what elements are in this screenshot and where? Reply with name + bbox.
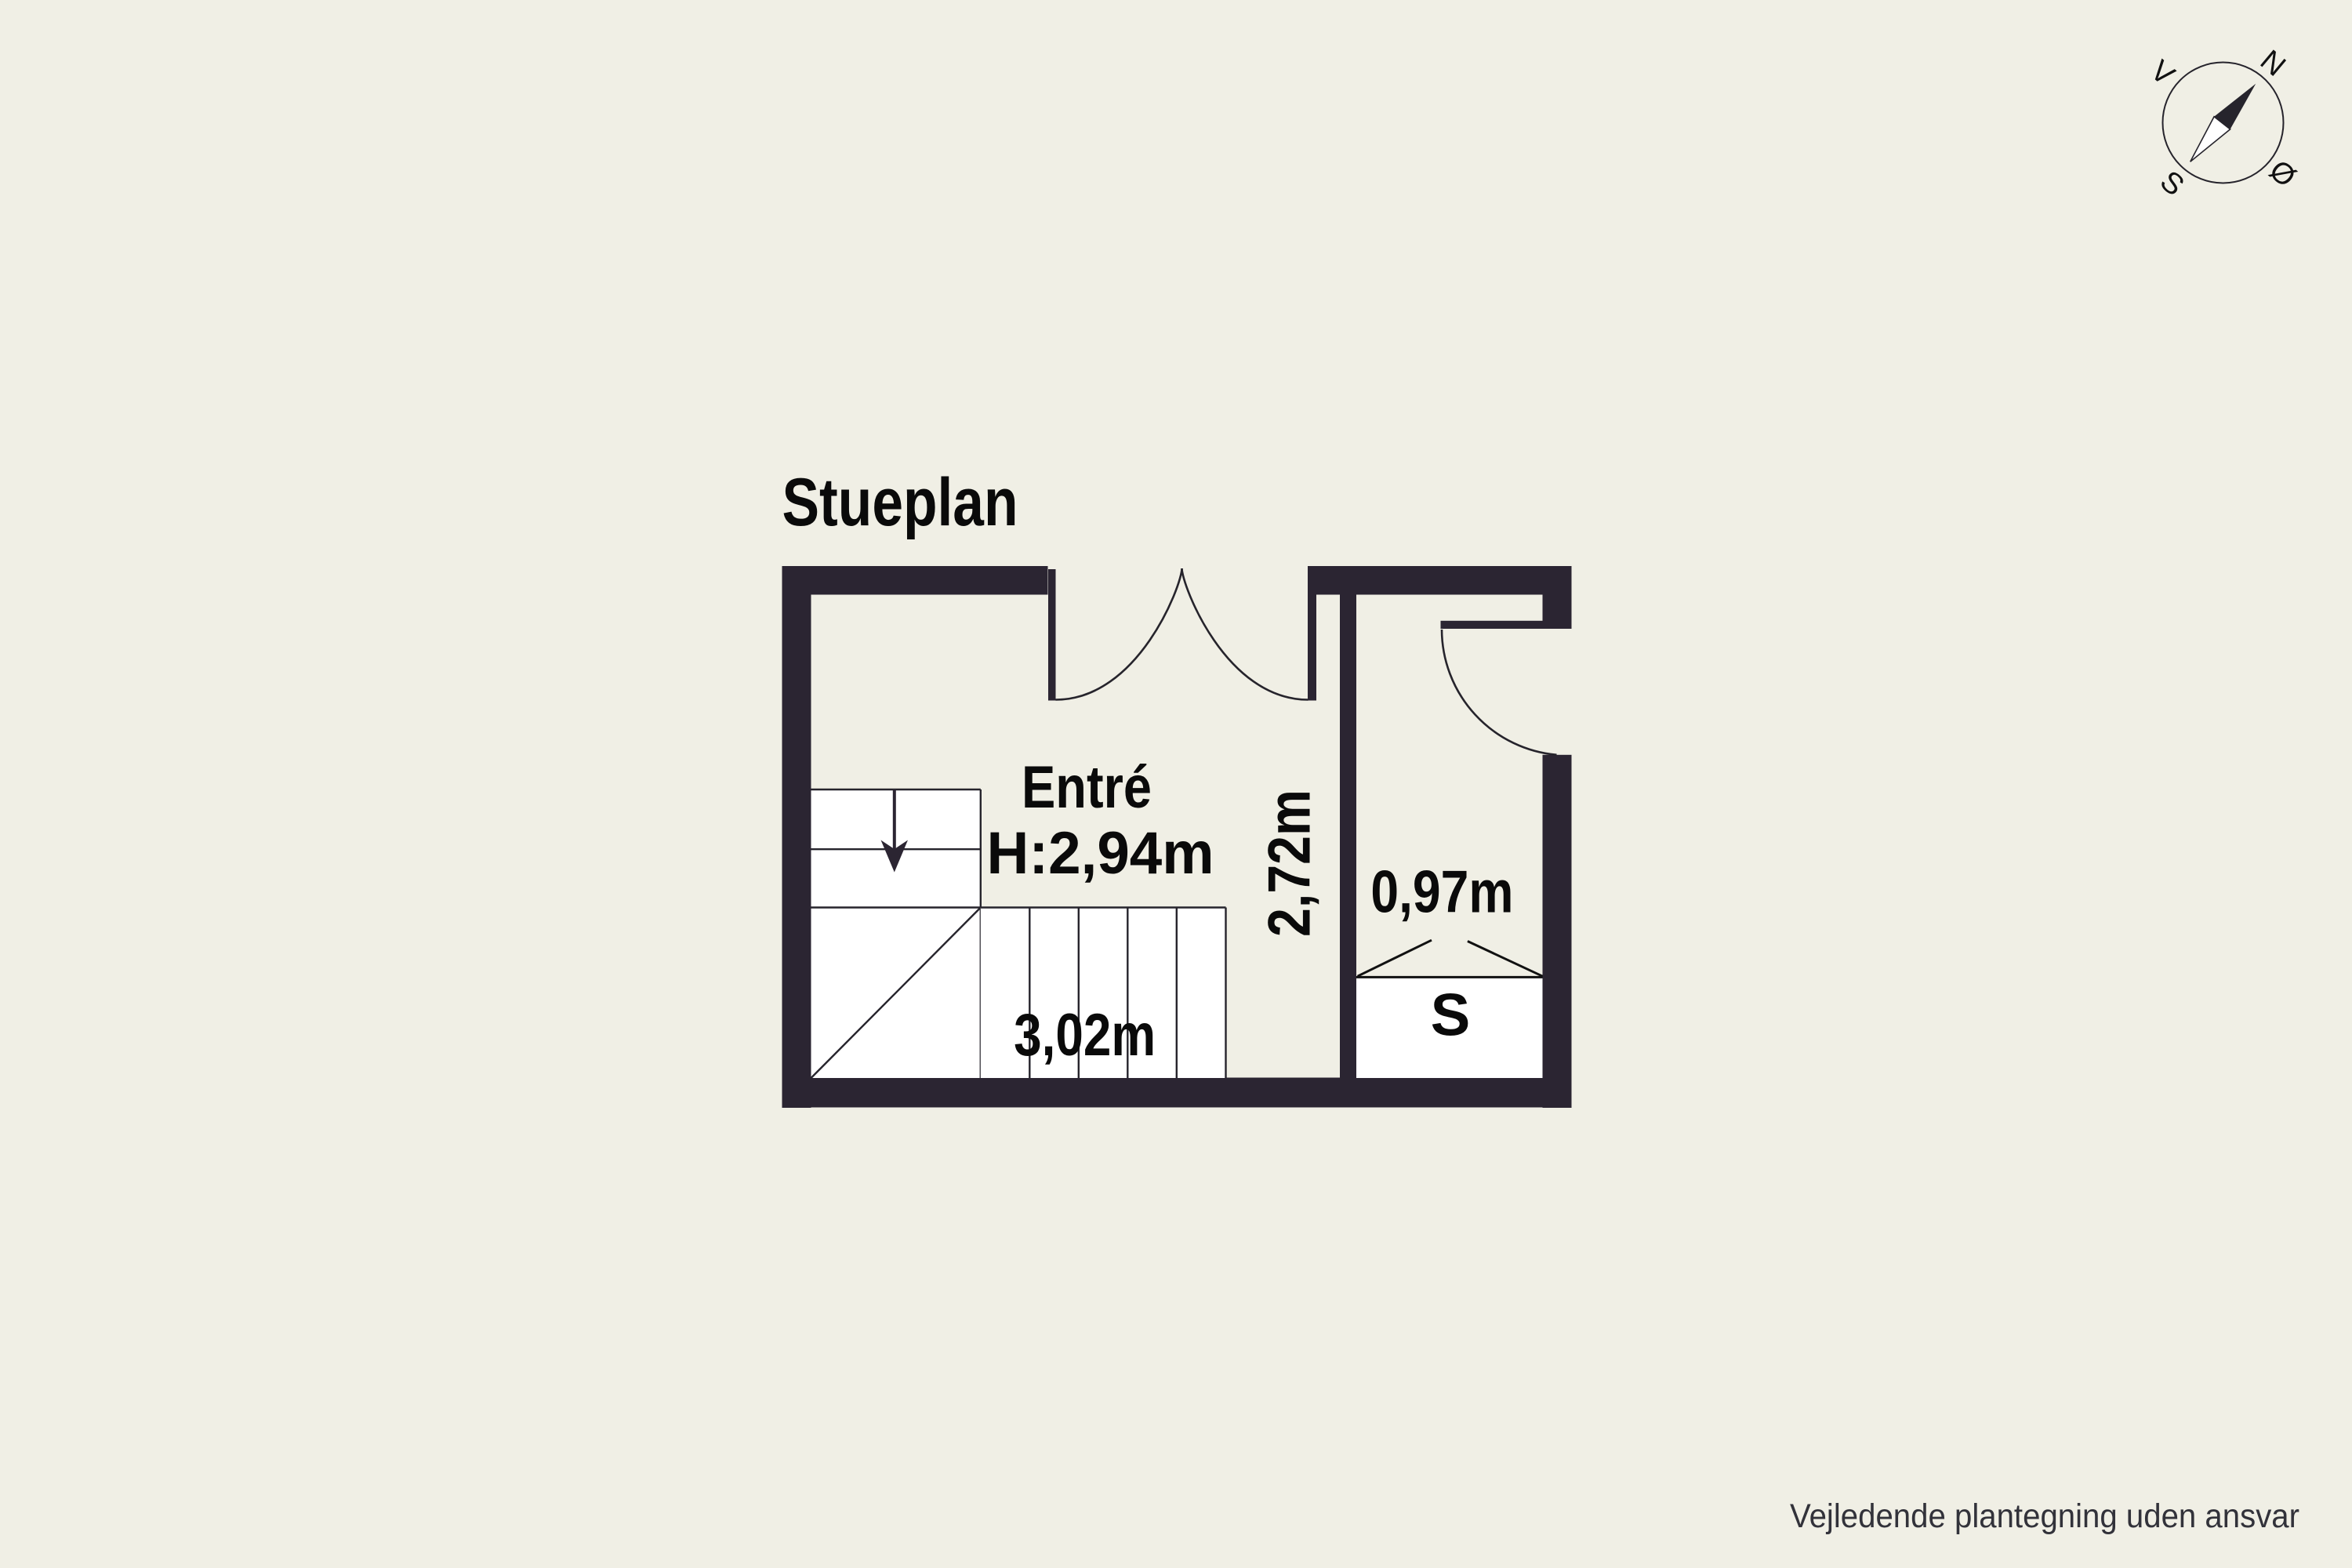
svg-text:Entré: Entré — [1022, 754, 1152, 821]
svg-text:H:2,94m: H:2,94m — [987, 820, 1214, 887]
svg-text:Vejledende plantegning uden an: Vejledende plantegning uden ansvar — [1790, 1497, 2299, 1535]
svg-text:2,72m: 2,72m — [1257, 789, 1323, 937]
svg-text:3,02m: 3,02m — [1014, 1002, 1156, 1069]
svg-text:S: S — [1431, 982, 1471, 1048]
svg-text:Stueplan: Stueplan — [782, 465, 1018, 540]
svg-text:0,97m: 0,97m — [1370, 859, 1513, 926]
